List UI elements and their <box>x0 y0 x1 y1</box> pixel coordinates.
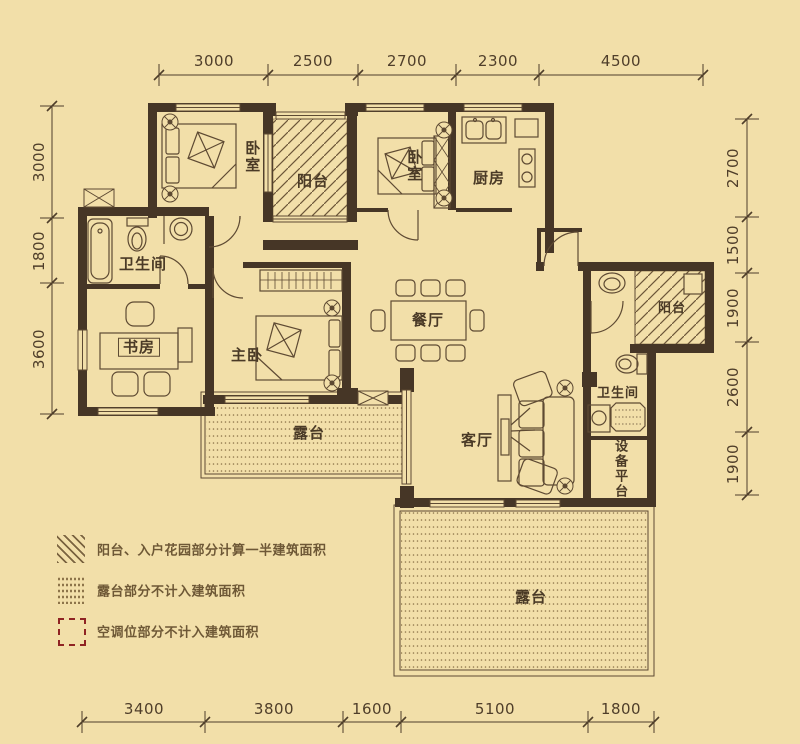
dim-right-3: 1900 <box>724 288 742 328</box>
dim-top-1: 3000 <box>194 52 234 70</box>
room-label-bathroom2: 卫生间 <box>597 387 639 401</box>
dim-bottom-2: 3800 <box>254 700 294 718</box>
room-label-balcony1: 阳台 <box>297 173 329 190</box>
dim-bottom-3: 1600 <box>352 700 392 718</box>
dim-right-5: 1900 <box>724 444 742 484</box>
legend-dots-swatch <box>57 576 85 604</box>
dim-right-1: 2700 <box>724 148 742 188</box>
dim-left-1: 3000 <box>30 142 48 182</box>
room-label-master-bedroom: 主卧 <box>231 347 263 364</box>
dim-left-3: 3600 <box>30 329 48 369</box>
dim-bottom-1: 3400 <box>124 700 164 718</box>
room-label-balcony2: 阳台 <box>658 302 686 316</box>
legend-hatch-swatch <box>57 535 85 563</box>
dim-top-3: 2700 <box>387 52 427 70</box>
dim-bottom-5: 1800 <box>601 700 641 718</box>
room-label-terrace1: 露台 <box>293 425 325 442</box>
dim-top-4: 2300 <box>478 52 518 70</box>
legend-ac-label: 空调位部分不计入建筑面积 <box>97 622 259 641</box>
legend-ac-swatch <box>58 618 86 646</box>
dim-right-2: 1500 <box>724 225 742 265</box>
legend-hatch-label: 阳台、入户花园部分计算一半建筑面积 <box>97 540 327 559</box>
room-label-bathroom1: 卫生间 <box>119 256 167 273</box>
dim-left-2: 1800 <box>30 231 48 271</box>
room-label-study: 书房 <box>118 338 160 357</box>
room-label-kitchen: 厨房 <box>473 170 505 187</box>
room-label-equipment-platform: 设备平台 <box>612 439 626 499</box>
legend-dots-label: 露台部分不计入建筑面积 <box>97 581 246 600</box>
room-label-bedroom2: 卧室 <box>406 149 423 183</box>
floor-plan-page: 卧室 阳台 卧室 厨房 卫生间 书房 主卧 餐厅 阳台 卫生间 客厅 露台 设备… <box>0 0 800 744</box>
dim-bottom-4: 5100 <box>475 700 515 718</box>
dim-right-4: 2600 <box>724 367 742 407</box>
dim-top-5: 4500 <box>601 52 641 70</box>
room-label-terrace2: 露台 <box>515 589 547 606</box>
room-label-living: 客厅 <box>461 432 493 449</box>
room-label-dining: 餐厅 <box>412 312 444 329</box>
dim-top-2: 2500 <box>293 52 333 70</box>
room-label-bedroom1: 卧室 <box>244 140 261 174</box>
